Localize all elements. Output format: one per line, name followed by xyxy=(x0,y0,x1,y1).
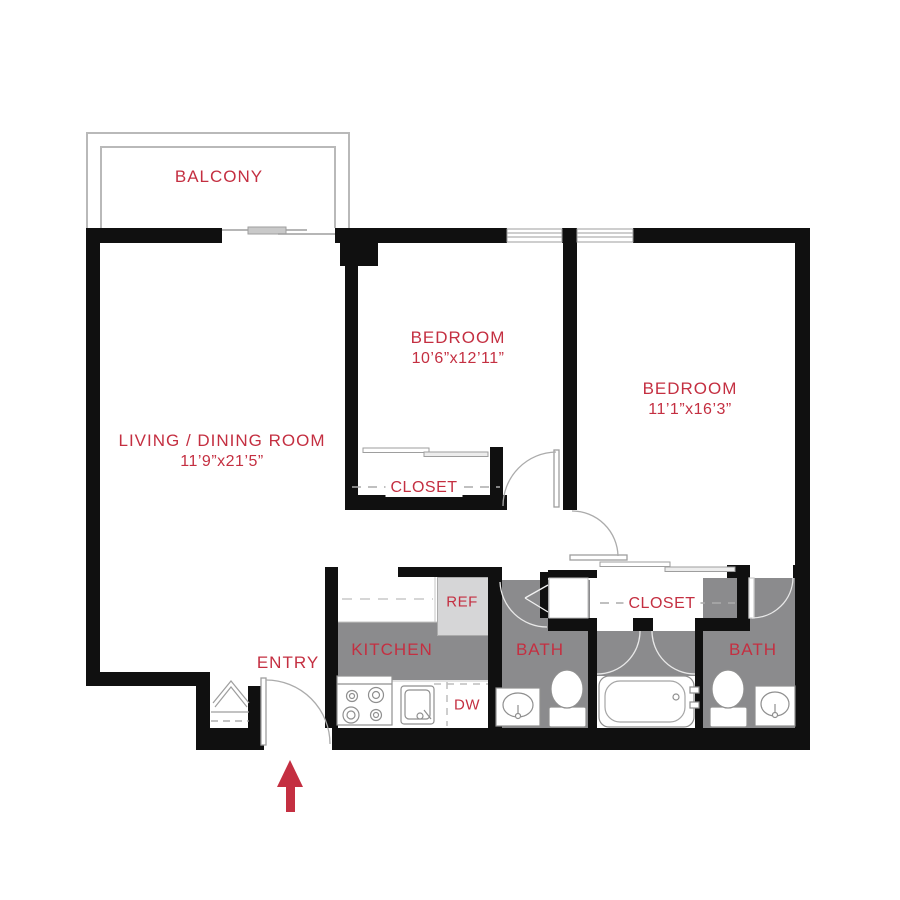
bath2-toilet-icon xyxy=(710,670,747,727)
closet2-label: CLOSET xyxy=(623,595,700,613)
bath1-toilet-icon xyxy=(549,670,586,727)
bath2-sink-icon xyxy=(755,686,795,726)
entry-closet-bifold-door xyxy=(211,681,249,721)
living-dining-label: LIVING / DINING ROOM xyxy=(118,431,325,451)
bedroom2-dimensions: 11’1”x16’3” xyxy=(648,401,731,419)
dishwasher-label: DW xyxy=(454,697,480,714)
bedroom1-window xyxy=(507,229,562,242)
bath1-label: BATH xyxy=(516,640,564,660)
refrigerator-label: REF xyxy=(446,594,478,611)
balcony-label: BALCONY xyxy=(175,167,263,187)
bath2-label: BATH xyxy=(729,640,777,660)
kitchen-sink-icon xyxy=(401,686,434,724)
living-dining-dimensions: 11’9”x21’5” xyxy=(180,453,263,471)
bath1-sink-icon xyxy=(496,688,540,726)
bedroom2-window xyxy=(577,229,633,242)
entry-arrow-icon xyxy=(277,760,303,812)
entry-label: ENTRY xyxy=(257,653,319,673)
stove-icon xyxy=(337,676,392,725)
bath2-door-swing xyxy=(749,578,793,618)
bedroom2-label: BEDROOM xyxy=(643,379,738,399)
bedroom1-dimensions: 10’6”x12’11” xyxy=(412,350,505,368)
balcony-sliding-door xyxy=(222,227,335,234)
bedroom2-door-swing xyxy=(570,511,627,560)
bathtub-icon xyxy=(599,676,699,727)
bath1-door-swing xyxy=(500,582,548,627)
linen-closet xyxy=(549,578,588,618)
bedroom1-door-swing xyxy=(503,450,559,507)
tubroom-left-door-swing xyxy=(597,631,640,674)
bedroom1-label: BEDROOM xyxy=(411,328,506,348)
tubroom-right-door-swing xyxy=(652,631,695,674)
entry-door-swing xyxy=(261,678,330,745)
floor-plan: BALCONY LIVING / DINING ROOM 11’9”x21’5”… xyxy=(0,0,900,900)
closet1-label: CLOSET xyxy=(385,479,462,497)
kitchen-label: KITCHEN xyxy=(351,640,433,660)
